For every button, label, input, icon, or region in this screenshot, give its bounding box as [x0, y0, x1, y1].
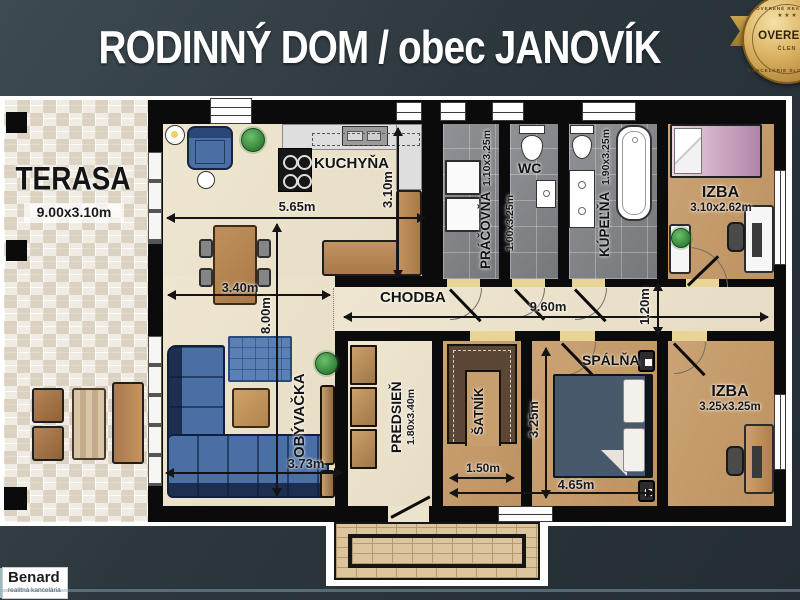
room-label-chodba: CHODBA	[380, 289, 446, 306]
side-table	[197, 171, 215, 189]
terrace-lounger	[72, 388, 106, 460]
toilet-tank	[570, 125, 594, 134]
dining-chair	[199, 239, 213, 258]
cabinet	[320, 470, 335, 498]
dining-chair	[257, 239, 271, 258]
room-dims-izba-dolna: 3.25x3.25m	[681, 401, 779, 413]
window	[440, 102, 466, 121]
agency-name: Benard	[8, 569, 60, 586]
dimension-label: 5.65m	[267, 199, 327, 214]
room-label-kupelna: KÚPEĽŇA	[597, 182, 612, 266]
pillow	[623, 428, 645, 472]
door-threshold	[512, 279, 545, 287]
door-threshold	[560, 331, 595, 341]
room-dims-izba-horna: 3.10x2.62m	[672, 202, 770, 214]
pillar	[4, 487, 27, 510]
dimension-label: 9.60m	[516, 299, 580, 314]
dimension-line	[545, 348, 547, 498]
room-dims-terasa: 9.00x3.10m	[24, 204, 124, 220]
hall-wardrobe	[350, 387, 377, 427]
window	[210, 98, 252, 124]
title-bar: RODINNÝ DOM / obec JANOVÍK	[0, 14, 760, 80]
kitchen-peninsula	[396, 190, 422, 276]
page-title: RODINNÝ DOM / obec JANOVÍK	[99, 20, 661, 74]
dimension-label: 1.50m	[456, 461, 510, 475]
dryer	[445, 197, 481, 232]
floor-plan-poster: RODINNÝ DOM / obec JANOVÍK OVERENÉ REALI…	[0, 0, 800, 600]
room-label-izba-horna: IZBA	[678, 184, 763, 202]
room-label-pracovna: PRÁČOVŇA	[478, 186, 493, 274]
badge-member-text: ČLEN	[744, 46, 800, 52]
dimension-label: 4.65m	[546, 477, 606, 492]
dimension-line	[450, 477, 514, 479]
window	[396, 102, 422, 121]
window	[498, 506, 553, 522]
room-label-obyvacka: OBÝVAČKA	[291, 370, 308, 462]
room-dims-kupelna: 1.90x3.25m	[600, 128, 612, 186]
dimension-line	[166, 472, 342, 474]
wash-basin	[536, 180, 556, 208]
desk	[744, 424, 774, 494]
vanity-sinks	[569, 170, 595, 228]
window	[582, 102, 636, 121]
dimension-line	[450, 492, 654, 494]
pillar	[6, 112, 27, 133]
dimension-label: 1.20m	[637, 282, 652, 332]
dimension-label: 8.00m	[258, 290, 273, 342]
room-dims-wc: 1.00x3.25m	[504, 188, 516, 258]
badge-stars: ★ ★ ★	[744, 12, 800, 19]
stove	[278, 148, 312, 192]
plant	[241, 128, 265, 152]
door-threshold	[447, 279, 480, 287]
double-bed	[553, 374, 653, 478]
badge-arc-top-text: OVERENÉ REALITNÉ	[744, 6, 800, 11]
hall-wardrobe	[350, 429, 377, 469]
window	[774, 170, 786, 265]
pillow	[623, 379, 645, 423]
room-label-predsien: PREDSIEŇ	[388, 378, 404, 456]
room-label-satnik: ŠATNÍK	[471, 380, 486, 442]
plant	[671, 228, 691, 248]
tv-stand	[320, 385, 335, 465]
room-label-kuchyna: KUCHYŇA	[314, 155, 389, 172]
desk	[744, 205, 774, 273]
hall-wardrobe	[350, 345, 377, 385]
washer	[445, 160, 481, 195]
room-label-spalna: SPÁLŇA	[582, 352, 640, 368]
room-label-wc: WC	[518, 160, 541, 176]
coffee-table	[232, 388, 270, 428]
single-bed	[670, 124, 762, 178]
hall-boundary-line	[333, 288, 334, 330]
agency-logo: Benard realitná kancelária	[3, 568, 67, 598]
door-threshold	[470, 331, 515, 341]
room-dims-pracovna: 1.10x3.25m	[481, 128, 493, 188]
office-chair	[727, 222, 745, 252]
dimension-line	[657, 283, 659, 335]
dimension-label: 3.73m	[276, 456, 336, 471]
room-dims-predsien: 1.80x3.40m	[405, 382, 417, 452]
dimension-line	[344, 316, 768, 318]
badge-main-text: OVERENÝ	[744, 30, 800, 42]
headboard	[645, 376, 651, 476]
office-chair	[726, 446, 744, 476]
terrace-glass-door	[148, 336, 162, 486]
plant	[315, 352, 338, 375]
bathtub	[616, 125, 652, 221]
verified-badge-icon: OVERENÉ REALITNÉ ★ ★ ★ OVERENÝ ČLEN KANC…	[742, 0, 800, 84]
terrace-chair	[32, 426, 64, 461]
dimension-line	[167, 217, 425, 219]
rug	[228, 336, 292, 382]
nightstand	[638, 350, 655, 372]
room-label-terasa: TERASA	[10, 161, 136, 198]
dimension-label: 3.25m	[526, 394, 541, 446]
room-label-izba-dolna: IZBA	[685, 383, 775, 401]
floor-lamp	[165, 125, 185, 145]
badge-arc-bottom-text: KANCELÁRIE SLOVENSKA	[744, 68, 800, 73]
toilet-tank	[519, 125, 545, 134]
window	[492, 102, 524, 121]
pillar	[6, 240, 27, 261]
terrace-chair	[32, 388, 64, 423]
door-threshold	[572, 279, 605, 287]
pillow	[674, 128, 702, 174]
entrance-porch	[334, 522, 540, 580]
dimension-label: 3.10m	[380, 166, 395, 214]
porch-steps	[348, 534, 526, 568]
terrace-bench	[112, 382, 144, 464]
door-threshold	[672, 331, 707, 341]
terrace-glass-door	[148, 152, 162, 244]
armchair	[187, 126, 233, 170]
upper-cabinets-outline	[312, 133, 420, 146]
bottom-divider	[0, 589, 800, 592]
dimension-line	[397, 128, 399, 278]
